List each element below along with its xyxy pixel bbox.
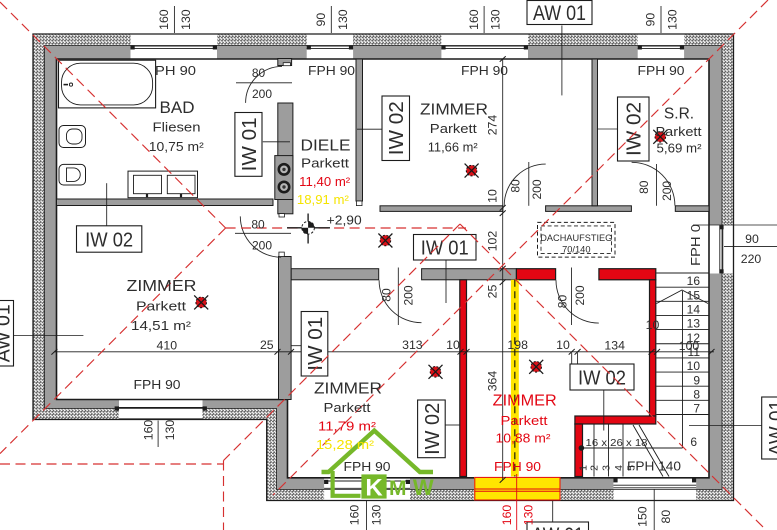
svg-text:10: 10: [687, 359, 701, 373]
svg-text:25: 25: [486, 285, 500, 299]
svg-text:150: 150: [636, 506, 650, 527]
svg-text:IW 02: IW 02: [421, 403, 444, 455]
svg-text:Parkett: Parkett: [136, 299, 186, 314]
svg-text:11,66 m²: 11,66 m²: [428, 140, 479, 155]
svg-text:DACHAUFSTIEG: DACHAUFSTIEG: [540, 233, 612, 243]
svg-text:130: 130: [336, 9, 350, 30]
svg-text:80: 80: [637, 180, 651, 194]
svg-text:10,88 m²: 10,88 m²: [496, 431, 552, 446]
svg-text:160: 160: [500, 505, 514, 526]
svg-text:130: 130: [369, 505, 383, 526]
svg-text:70/140: 70/140: [562, 245, 590, 255]
svg-text:130: 130: [666, 9, 680, 30]
svg-text:364: 364: [486, 371, 500, 392]
svg-text:IW 01: IW 01: [421, 237, 469, 260]
svg-text:4: 4: [613, 465, 625, 471]
svg-text:9: 9: [693, 373, 700, 387]
svg-text:10: 10: [556, 338, 570, 352]
svg-text:200: 200: [660, 181, 674, 201]
svg-text:90: 90: [644, 13, 658, 27]
svg-text:80: 80: [659, 510, 673, 524]
svg-text:ZIMMER: ZIMMER: [493, 393, 557, 410]
svg-text:IW 02: IW 02: [623, 102, 646, 156]
svg-text:10: 10: [646, 318, 660, 332]
svg-text:FPH 90: FPH 90: [134, 377, 181, 392]
svg-text:130: 130: [489, 9, 503, 30]
svg-text:Parkett: Parkett: [501, 413, 548, 428]
svg-text:16 x 26 x 18: 16 x 26 x 18: [586, 438, 648, 449]
svg-text:3: 3: [601, 465, 613, 471]
svg-text:Parkett: Parkett: [324, 400, 371, 415]
svg-text:313: 313: [402, 338, 423, 352]
svg-text:200: 200: [252, 87, 272, 101]
svg-text:15,28 m²: 15,28 m²: [316, 437, 375, 452]
svg-text:10,75 m²: 10,75 m²: [149, 139, 205, 154]
svg-text:160: 160: [141, 420, 155, 441]
svg-text:AW 01: AW 01: [0, 304, 14, 362]
svg-text:160: 160: [157, 9, 171, 30]
svg-text:S.R.: S.R.: [664, 106, 694, 123]
svg-text:W: W: [413, 475, 434, 500]
svg-text:Parkett: Parkett: [301, 156, 349, 171]
svg-text:18,91 m²: 18,91 m²: [297, 192, 350, 207]
svg-text:IW 02: IW 02: [578, 366, 626, 389]
svg-text:8: 8: [693, 387, 700, 401]
svg-text:80: 80: [509, 179, 523, 193]
svg-text:FPH 90: FPH 90: [638, 63, 685, 78]
svg-text:16: 16: [687, 274, 701, 288]
svg-text:274: 274: [486, 115, 500, 136]
svg-text:200: 200: [573, 285, 587, 305]
svg-text:10: 10: [446, 338, 460, 352]
svg-text:220: 220: [741, 252, 762, 266]
svg-text:11,40 m²: 11,40 m²: [299, 174, 351, 189]
svg-text:FPH 90: FPH 90: [308, 63, 355, 78]
svg-text:100: 100: [679, 339, 700, 353]
svg-text:Parkett: Parkett: [430, 121, 477, 136]
svg-text:410: 410: [157, 338, 178, 352]
svg-text:AW 01: AW 01: [533, 2, 586, 25]
svg-text:DIELE: DIELE: [301, 138, 351, 155]
svg-text:102: 102: [486, 231, 500, 252]
svg-text:90: 90: [745, 232, 759, 246]
svg-text:11,79 m²: 11,79 m²: [318, 419, 377, 434]
svg-text:ZIMMER: ZIMMER: [314, 381, 382, 398]
svg-text:13: 13: [687, 317, 701, 331]
svg-text:10: 10: [486, 189, 500, 203]
svg-text:FPH 90: FPH 90: [344, 459, 391, 474]
svg-text:5,69 m²: 5,69 m²: [657, 141, 703, 156]
svg-text:134: 134: [604, 339, 625, 353]
svg-text:90: 90: [314, 13, 328, 27]
svg-text:ZIMMER: ZIMMER: [420, 102, 488, 119]
svg-text:14,51 m²: 14,51 m²: [131, 318, 192, 333]
svg-text:160: 160: [467, 9, 481, 30]
svg-text:IW 01: IW 01: [238, 117, 261, 171]
svg-text:80: 80: [251, 218, 265, 232]
svg-text:160: 160: [348, 505, 362, 526]
svg-text:FPH 0: FPH 0: [688, 224, 703, 266]
svg-text:15: 15: [687, 288, 701, 302]
svg-text:130: 130: [163, 420, 177, 441]
svg-text:14: 14: [687, 303, 701, 317]
svg-text:K: K: [365, 474, 383, 501]
svg-text:130: 130: [179, 9, 193, 30]
svg-text:IW 02: IW 02: [385, 101, 408, 155]
svg-text:Parkett: Parkett: [656, 124, 702, 139]
svg-text:200: 200: [252, 239, 272, 253]
svg-text:BAD: BAD: [160, 98, 195, 117]
svg-text:7: 7: [693, 402, 700, 416]
svg-text:FPH 140: FPH 140: [627, 459, 681, 474]
svg-text:+2,90: +2,90: [327, 212, 362, 227]
svg-text:80: 80: [555, 295, 569, 309]
svg-text:AW 01: AW 01: [532, 523, 584, 530]
svg-text:200: 200: [530, 179, 544, 199]
svg-text:80: 80: [380, 288, 394, 302]
svg-text:80: 80: [252, 66, 266, 80]
svg-text:AW 01: AW 01: [765, 400, 777, 456]
svg-text:2: 2: [589, 465, 601, 471]
svg-text:FPH 90: FPH 90: [461, 63, 508, 78]
svg-text:M: M: [389, 477, 407, 500]
svg-text:IW 02: IW 02: [85, 228, 133, 251]
svg-text:PH 90: PH 90: [155, 63, 196, 78]
svg-text:FPH 90: FPH 90: [494, 459, 541, 474]
svg-text:Fliesen: Fliesen: [153, 120, 201, 135]
svg-text:200: 200: [401, 285, 415, 305]
svg-text:130: 130: [522, 505, 536, 526]
svg-text:6: 6: [690, 435, 697, 449]
svg-text:25: 25: [260, 338, 274, 352]
svg-text:ZIMMER: ZIMMER: [127, 278, 197, 295]
svg-text:IW 01: IW 01: [304, 317, 327, 371]
svg-text:198: 198: [507, 338, 528, 352]
